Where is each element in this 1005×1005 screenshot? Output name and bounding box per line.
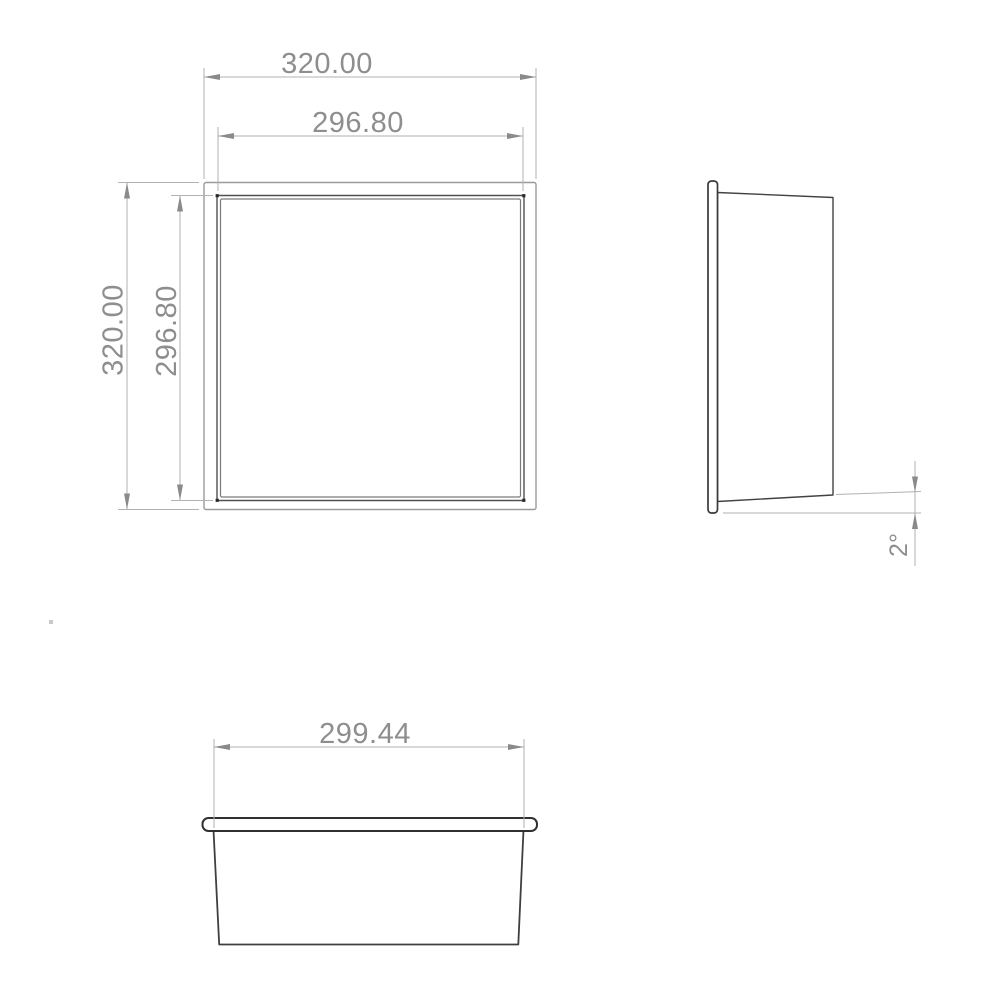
front-outer-frame <box>204 183 536 510</box>
arrowhead-left-icon <box>218 133 234 139</box>
corner-mark <box>216 194 219 197</box>
bottom-view <box>203 818 538 945</box>
bottom-flange <box>203 818 538 831</box>
corner-mark <box>522 194 525 197</box>
front-view <box>204 183 536 510</box>
arrowhead-right-icon <box>507 133 523 139</box>
dim-side-draft-angle-value: 2° <box>885 533 913 557</box>
dim-front-inner-width-value: 296.80 <box>312 107 404 139</box>
bottom-body-outline <box>214 830 524 945</box>
arrowhead-down-icon <box>124 494 130 510</box>
side-view <box>708 181 833 513</box>
dim-front-outer-width-value: 320.00 <box>281 48 373 80</box>
arrowhead-right-icon <box>508 744 524 750</box>
dim-bottom-opening-width-value: 299.44 <box>319 718 411 750</box>
arrowhead-down-icon <box>912 477 918 493</box>
dim-bottom-opening-width: 299.44 <box>214 718 524 828</box>
corner-mark <box>216 499 219 502</box>
arrowhead-left-icon <box>204 74 220 80</box>
arrowhead-left-icon <box>214 744 230 750</box>
side-flange <box>708 181 718 513</box>
dim-front-outer-height-value: 320.00 <box>98 284 130 376</box>
dim-front-inner-height-value: 296.80 <box>151 285 183 377</box>
arrowhead-up-icon <box>124 183 130 199</box>
arrowhead-right-icon <box>520 74 536 80</box>
dim-front-inner-width: 296.80 <box>218 107 523 191</box>
dim-front-outer-height: 320.00 <box>98 183 200 510</box>
arrowhead-up-icon <box>912 513 918 529</box>
corner-mark <box>522 499 525 502</box>
side-body-outline <box>718 193 834 502</box>
speck-artifact <box>49 620 53 624</box>
arrowhead-down-icon <box>177 485 183 501</box>
arrowhead-up-icon <box>177 196 183 212</box>
technical-drawing-canvas: 320.00 296.80 320.00 296.80 <box>0 0 1005 1005</box>
reference-line-sloped <box>836 492 921 495</box>
